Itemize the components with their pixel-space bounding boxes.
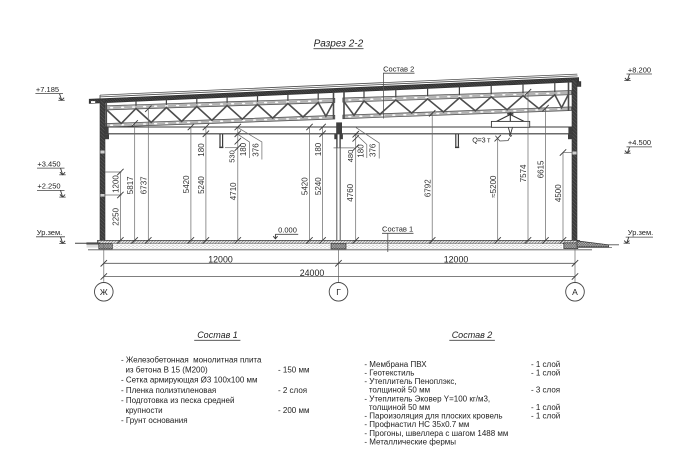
svg-text:1200: 1200 <box>112 175 121 193</box>
svg-text:5420: 5420 <box>301 177 310 195</box>
svg-text:180: 180 <box>356 144 365 158</box>
svg-text:4710: 4710 <box>229 182 238 200</box>
svg-text:180: 180 <box>239 142 248 156</box>
svg-text:376: 376 <box>251 143 260 157</box>
svg-text:- Геотекстиль: - Геотекстиль <box>364 368 414 377</box>
svg-text:- Подготовка из песка средней: - Подготовка из песка средней <box>121 396 234 405</box>
svg-text:Состав 2: Состав 2 <box>383 64 414 73</box>
svg-text:толщиной 50 мм: толщиной 50 мм <box>364 403 430 412</box>
svg-text:530: 530 <box>228 150 237 163</box>
svg-text:- 150 мм: - 150 мм <box>278 366 309 375</box>
svg-text:Q=3 т: Q=3 т <box>472 135 491 144</box>
svg-text:- Сетка армирующая Ø3 100х100: - Сетка армирующая Ø3 100х100 мм <box>121 376 257 385</box>
svg-text:4760: 4760 <box>346 183 355 201</box>
svg-text:- 2 слоя: - 2 слоя <box>278 386 307 395</box>
svg-text:из бетона В 15 (М200): из бетона В 15 (М200) <box>121 366 208 375</box>
svg-text:Ж: Ж <box>100 287 108 297</box>
svg-text:- 1 слой: - 1 слой <box>531 368 560 377</box>
svg-text:12000: 12000 <box>444 255 469 265</box>
svg-text:5240: 5240 <box>197 176 206 194</box>
svg-text:- Грунт основания: - Грунт основания <box>121 416 188 425</box>
svg-text:5817: 5817 <box>126 176 135 194</box>
svg-text:Разрез 2-2: Разрез 2-2 <box>314 39 364 50</box>
svg-text:+7.185: +7.185 <box>36 85 59 94</box>
svg-text:376: 376 <box>369 143 378 157</box>
svg-text:6737: 6737 <box>140 176 149 194</box>
svg-text:+8.200: +8.200 <box>628 65 651 74</box>
svg-text:А: А <box>572 287 578 297</box>
svg-text:+3.450: +3.450 <box>37 159 60 168</box>
svg-text:+2.250: +2.250 <box>37 182 60 191</box>
svg-text:7574: 7574 <box>519 164 528 182</box>
svg-text:- 200 мм: - 200 мм <box>278 406 309 415</box>
svg-text:- Металлические фермы: - Металлические фермы <box>364 438 456 447</box>
svg-text:Состав 2: Состав 2 <box>452 330 493 340</box>
svg-text:0.000: 0.000 <box>278 225 297 234</box>
svg-text:2250: 2250 <box>112 207 121 225</box>
svg-text:Состав 1: Состав 1 <box>197 330 238 340</box>
svg-text:6792: 6792 <box>423 179 432 197</box>
svg-text:≈5200: ≈5200 <box>489 175 498 198</box>
svg-text:Ур.зем.: Ур.зем. <box>628 228 653 237</box>
svg-text:- Пленка полиэтиленовая: - Пленка полиэтиленовая <box>121 386 216 395</box>
svg-text:24000: 24000 <box>300 268 325 278</box>
svg-text:крупности: крупности <box>121 406 163 415</box>
svg-text:Г: Г <box>336 287 341 297</box>
svg-text:Состав 1: Состав 1 <box>382 224 413 233</box>
svg-text:5240: 5240 <box>314 177 323 195</box>
svg-text:12000: 12000 <box>208 255 233 265</box>
svg-text:Ур.зем.: Ур.зем. <box>37 228 62 237</box>
svg-text:+4.500: +4.500 <box>628 138 651 147</box>
svg-text:5420: 5420 <box>182 175 191 193</box>
svg-text:- Железобетонная монолитная п: - Железобетонная монолитная плита <box>121 356 262 365</box>
svg-text:- Прогоны, швеллера с шагом 14: - Прогоны, швеллера с шагом 1488 мм <box>364 429 508 438</box>
svg-text:6615: 6615 <box>537 160 546 178</box>
svg-text:180: 180 <box>314 142 323 156</box>
svg-text:180: 180 <box>197 143 206 157</box>
svg-text:- 1 слой: - 1 слой <box>531 412 560 421</box>
svg-text:- 3 слоя: - 3 слоя <box>531 386 560 395</box>
svg-text:- 1 слой: - 1 слой <box>531 403 560 412</box>
svg-text:480: 480 <box>346 150 355 163</box>
svg-text:4500: 4500 <box>554 184 563 202</box>
